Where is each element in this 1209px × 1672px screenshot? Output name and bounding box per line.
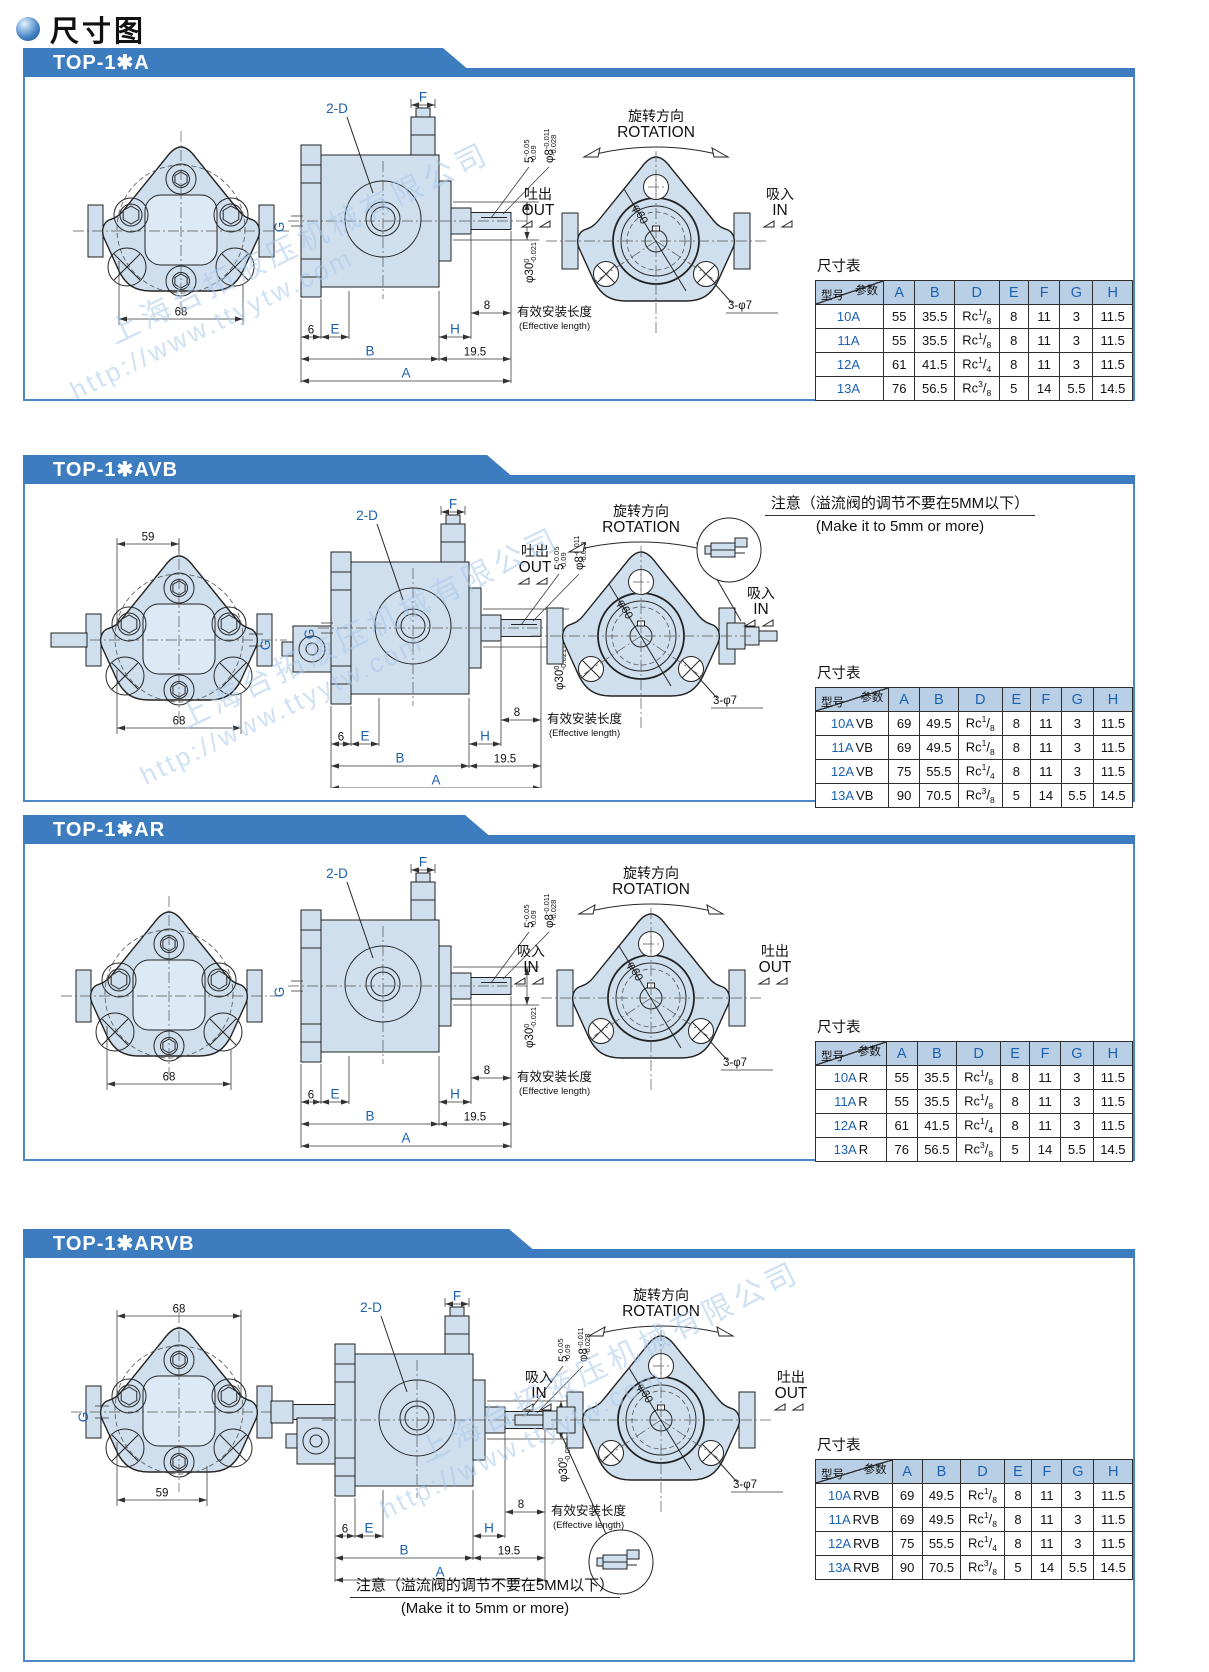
svg-text:有效安装长度: 有效安装长度: [547, 711, 623, 726]
column-header-D: D: [961, 1460, 1004, 1484]
svg-text:φ300-0.021: φ300-0.021: [522, 1007, 538, 1048]
svg-text:ROTATION: ROTATION: [612, 881, 690, 898]
table-row: 13ARVB9070.5Rc3/85145.514.5: [816, 1556, 1133, 1580]
section-top-1avb: TOP-1✱AVB 5968GF2-DG5-0.05-0.09φ8-0.011-…: [23, 455, 1135, 800]
model-label: 型号: [821, 287, 844, 303]
table-row: 10AVB6949.5Rc1/8811311.5: [816, 712, 1133, 736]
param-model-header: 参数型号: [816, 281, 884, 305]
table-row: 10A5535.5Rc1/8811311.5: [816, 305, 1133, 329]
model-cell: 12ARVB: [816, 1532, 893, 1556]
column-header-E: E: [1004, 1460, 1032, 1484]
value-cell: Rc1/8: [958, 736, 1002, 760]
value-cell: 14.5: [1093, 1138, 1132, 1162]
front-view: 5968G: [51, 532, 287, 735]
svg-text:G: G: [272, 222, 287, 233]
svg-text:5-0.05-0.09: 5-0.05-0.09: [552, 546, 568, 570]
model-cell: 10AVB: [816, 712, 889, 736]
svg-text:IN: IN: [753, 601, 769, 618]
value-cell: 5: [999, 377, 1028, 401]
value-cell: 8: [1001, 1114, 1030, 1138]
column-header-G: G: [1061, 688, 1093, 712]
value-cell: 61: [883, 353, 914, 377]
section-header-tab: TOP-1✱AR: [23, 815, 499, 844]
value-cell: 11.5: [1093, 712, 1132, 736]
value-cell: Rc1/8: [956, 1066, 1000, 1090]
svg-text:吐出: 吐出: [761, 943, 789, 959]
param-label: 参数: [860, 689, 883, 705]
dimension-table-title: 尺寸表: [817, 662, 1133, 683]
svg-text:ROTATION: ROTATION: [622, 1303, 700, 1320]
svg-text:19.5: 19.5: [494, 754, 516, 766]
value-cell: 11.5: [1094, 1532, 1133, 1556]
value-cell: 3: [1061, 712, 1093, 736]
param-label: 参数: [864, 1461, 887, 1477]
value-cell: 11.5: [1093, 736, 1132, 760]
value-cell: 11.5: [1093, 329, 1133, 353]
param-label: 参数: [858, 1043, 881, 1059]
svg-text:有效安装长度: 有效安装长度: [517, 304, 593, 319]
value-cell: 55.5: [919, 760, 958, 784]
value-cell: 3: [1060, 305, 1093, 329]
svg-text:G: G: [76, 1412, 91, 1423]
value-cell: 8: [1001, 1066, 1030, 1090]
column-header-B: B: [919, 688, 958, 712]
value-cell: 8: [1001, 1090, 1030, 1114]
model-cell: 12AVB: [816, 760, 889, 784]
value-cell: 3: [1062, 1508, 1094, 1532]
value-cell: 61: [886, 1114, 917, 1138]
param-model-header: 参数型号: [816, 1042, 887, 1066]
dimension-table: 参数型号ABDEFGH10AR5535.5Rc1/8811311.511AR55…: [815, 1041, 1133, 1162]
value-cell: 11.5: [1093, 305, 1133, 329]
table-row: 11AR5535.5Rc1/8811311.5: [816, 1090, 1133, 1114]
param-label: 参数: [855, 282, 878, 298]
svg-text:59: 59: [156, 1488, 169, 1500]
value-cell: 56.5: [915, 377, 955, 401]
svg-text:H: H: [484, 1521, 494, 1536]
value-cell: 5.5: [1061, 1138, 1094, 1162]
model-cell: 11AR: [816, 1090, 887, 1114]
table-row: 13A7656.5Rc3/85145.514.5: [816, 377, 1133, 401]
section-header-tab: TOP-1✱A: [23, 48, 477, 77]
column-header-E: E: [999, 281, 1028, 305]
svg-text:5-0.05-0.09: 5-0.05-0.09: [556, 1338, 572, 1362]
value-cell: Rc1/4: [956, 1114, 1000, 1138]
section-header: TOP-1✱AVB: [23, 455, 1135, 484]
column-header-B: B: [917, 1042, 956, 1066]
value-cell: 11: [1028, 305, 1059, 329]
section-title: TOP-1✱AVB: [23, 455, 521, 482]
value-cell: 69: [889, 712, 920, 736]
caution-note-en: (Make it to 5mm or more): [250, 1600, 720, 1617]
value-cell: 3: [1061, 760, 1093, 784]
table-row: 12A6141.5Rc1/4811311.5: [816, 353, 1133, 377]
front-view: 6859G19: [71, 1304, 372, 1507]
svg-text:IN: IN: [523, 959, 539, 976]
value-cell: 75: [892, 1532, 922, 1556]
value-cell: 35.5: [917, 1066, 956, 1090]
mounting-view: φ603-φ7旋转方向ROTATION吐出OUT吸入IN: [522, 108, 794, 336]
svg-text:19.5: 19.5: [464, 1112, 486, 1124]
param-model-header: 参数型号: [816, 1460, 893, 1484]
value-cell: 5.5: [1061, 784, 1093, 808]
value-cell: 76: [886, 1138, 917, 1162]
dimension-table-wrap: 尺寸表 参数型号ABDEFGH10A5535.5Rc1/8811311.511A…: [815, 255, 1133, 401]
value-cell: 11.5: [1093, 1114, 1132, 1138]
table-header-row: 参数型号ABDEFGH: [816, 1042, 1133, 1066]
svg-text:8: 8: [518, 1499, 524, 1511]
value-cell: 11.5: [1093, 1090, 1132, 1114]
model-cell: 11ARVB: [816, 1508, 893, 1532]
svg-text:E: E: [330, 322, 339, 337]
svg-text:5-0.05-0.09: 5-0.05-0.09: [522, 904, 538, 928]
svg-text:6: 6: [308, 325, 314, 337]
value-cell: 35.5: [915, 329, 955, 353]
column-header-A: A: [886, 1042, 917, 1066]
table-row: 13AR7656.5Rc3/85145.514.5: [816, 1138, 1133, 1162]
value-cell: 5: [1004, 1556, 1032, 1580]
svg-text:吐出: 吐出: [777, 1369, 805, 1385]
table-row: 12ARVB7555.5Rc1/4811311.5: [816, 1532, 1133, 1556]
model-cell: 13AR: [816, 1138, 887, 1162]
value-cell: 11: [1032, 1484, 1062, 1508]
value-cell: 11: [1030, 1114, 1061, 1138]
svg-text:G: G: [272, 987, 287, 998]
model-cell: 11A: [816, 329, 884, 353]
svg-text:吸入: 吸入: [766, 186, 794, 202]
param-model-header: 参数型号: [816, 688, 889, 712]
value-cell: 3: [1061, 1114, 1094, 1138]
mounting-view: φ603-φ7旋转方向ROTATION吐出OUT吸入IN: [515, 1287, 808, 1594]
bullet-icon: [16, 17, 40, 41]
value-cell: 8: [1004, 1508, 1032, 1532]
value-cell: 75: [889, 760, 920, 784]
value-cell: 5: [1001, 1138, 1030, 1162]
value-cell: 69: [892, 1484, 922, 1508]
svg-text:F: F: [419, 90, 427, 105]
value-cell: 14: [1030, 1138, 1061, 1162]
column-header-F: F: [1030, 1042, 1061, 1066]
value-cell: 69: [892, 1508, 922, 1532]
catalog-page: 尺寸图 TOP-1✱A 68F2-DG5-0.05-0.09φ8-0.011-0…: [0, 0, 1209, 1672]
value-cell: 14.5: [1093, 784, 1132, 808]
front-view: 68: [61, 896, 277, 1090]
svg-text:OUT: OUT: [775, 1385, 808, 1402]
section-header-tab: TOP-1✱AVB: [23, 455, 521, 484]
svg-text:19.5: 19.5: [464, 347, 486, 359]
svg-text:68: 68: [173, 1304, 186, 1316]
value-cell: 11.5: [1093, 760, 1132, 784]
svg-text:IN: IN: [531, 1385, 547, 1402]
column-header-A: A: [889, 688, 920, 712]
svg-text:G: G: [258, 640, 273, 651]
value-cell: 49.5: [922, 1484, 961, 1508]
value-cell: Rc1/8: [958, 712, 1002, 736]
value-cell: Rc1/4: [958, 760, 1002, 784]
svg-text:吸入: 吸入: [747, 585, 775, 601]
model-cell: 13ARVB: [816, 1556, 893, 1580]
svg-text:(Effective length): (Effective length): [519, 321, 590, 332]
value-cell: 8: [999, 305, 1028, 329]
value-cell: Rc3/8: [961, 1556, 1004, 1580]
svg-text:B: B: [365, 344, 374, 359]
value-cell: 76: [883, 377, 914, 401]
section-top-1ar: TOP-1✱AR 68F2-DG5-0.05-0.09φ8-0.011-0.02…: [23, 815, 1135, 1159]
dimension-table-title: 尺寸表: [817, 1434, 1133, 1455]
table-header-row: 参数型号ABDEFGH: [816, 688, 1133, 712]
value-cell: 41.5: [917, 1114, 956, 1138]
table-row: 10ARVB6949.5Rc1/8811311.5: [816, 1484, 1133, 1508]
value-cell: 11: [1028, 353, 1059, 377]
model-label: 型号: [821, 1048, 844, 1064]
value-cell: 11.5: [1094, 1508, 1133, 1532]
value-cell: 49.5: [922, 1508, 961, 1532]
value-cell: 70.5: [919, 784, 958, 808]
column-header-A: A: [892, 1460, 922, 1484]
value-cell: 11: [1032, 1532, 1062, 1556]
svg-text:旋转方向: 旋转方向: [633, 1287, 689, 1303]
caution-note-cn: 注意（溢流阀的调节不要在5MM以下）: [350, 1574, 620, 1598]
value-cell: 8: [999, 353, 1028, 377]
model-cell: 10A: [816, 305, 884, 329]
section-title: TOP-1✱ARVB: [23, 1229, 543, 1256]
column-header-H: H: [1093, 688, 1132, 712]
table-header-row: 参数型号ABDEFGH: [816, 281, 1133, 305]
value-cell: 3: [1061, 1090, 1094, 1114]
svg-text:(Effective length): (Effective length): [549, 728, 620, 739]
svg-text:H: H: [450, 322, 460, 337]
column-header-G: G: [1060, 281, 1093, 305]
value-cell: 14.5: [1094, 1556, 1133, 1580]
svg-text:φ8-0.011-0.028: φ8-0.011-0.028: [542, 893, 558, 928]
front-view: 68: [73, 131, 289, 325]
section-body: 68F2-DG5-0.05-0.09φ8-0.011-0.028φ300-0.0…: [23, 77, 1135, 401]
svg-text:8: 8: [484, 300, 490, 312]
svg-text:6: 6: [308, 1090, 314, 1102]
svg-text:吸入: 吸入: [525, 1369, 553, 1385]
section-top-1arvb: TOP-1✱ARVB 6859G19F2-D5-0.05-0.09φ8-0.01…: [23, 1229, 1135, 1660]
section-top-1a: TOP-1✱A 68F2-DG5-0.05-0.09φ8-0.011-0.028…: [23, 48, 1135, 399]
table-row: 12AR6141.5Rc1/4811311.5: [816, 1114, 1133, 1138]
value-cell: 8: [1002, 712, 1030, 736]
value-cell: 3: [1061, 736, 1093, 760]
section-header: TOP-1✱ARVB: [23, 1229, 1135, 1258]
value-cell: 90: [889, 784, 920, 808]
dimension-table-title: 尺寸表: [817, 1016, 1133, 1037]
value-cell: 11.5: [1093, 353, 1133, 377]
value-cell: 11: [1032, 1508, 1062, 1532]
value-cell: 11: [1031, 736, 1062, 760]
table-row: 11ARVB6949.5Rc1/8811311.5: [816, 1508, 1133, 1532]
value-cell: 35.5: [915, 305, 955, 329]
svg-text:3-φ7: 3-φ7: [728, 300, 752, 312]
svg-text:E: E: [360, 729, 369, 744]
svg-text:F: F: [419, 855, 427, 870]
svg-text:OUT: OUT: [522, 202, 555, 219]
value-cell: 11.5: [1094, 1484, 1133, 1508]
value-cell: 55: [883, 305, 914, 329]
section-body: 6859G19F2-D5-0.05-0.09φ8-0.011-0.028φ300…: [23, 1258, 1135, 1662]
value-cell: Rc3/8: [958, 784, 1002, 808]
value-cell: Rc1/4: [954, 353, 999, 377]
svg-text:2-D: 2-D: [356, 508, 378, 523]
value-cell: 8: [999, 329, 1028, 353]
value-cell: 55.5: [922, 1532, 961, 1556]
model-cell: 10ARVB: [816, 1484, 893, 1508]
svg-text:吐出: 吐出: [524, 186, 552, 202]
column-header-G: G: [1062, 1460, 1094, 1484]
value-cell: 11.5: [1093, 1066, 1132, 1090]
column-header-A: A: [883, 281, 914, 305]
value-cell: 3: [1060, 353, 1093, 377]
model-cell: 12A: [816, 353, 884, 377]
svg-text:旋转方向: 旋转方向: [623, 865, 679, 881]
column-header-F: F: [1031, 688, 1062, 712]
value-cell: 70.5: [922, 1556, 961, 1580]
svg-text:68: 68: [173, 716, 186, 728]
table-row: 11AVB6949.5Rc1/8811311.5: [816, 736, 1133, 760]
table-row: 13AVB9070.5Rc3/85145.514.5: [816, 784, 1133, 808]
caution-note: 注意（溢流阀的调节不要在5MM以下）(Make it to 5mm or mor…: [250, 1574, 720, 1617]
side-view: F2-DG5-0.05-0.09φ8-0.011-0.028φ300-0.021…: [272, 855, 593, 1149]
column-header-D: D: [956, 1042, 1000, 1066]
svg-text:φ300-0.021: φ300-0.021: [522, 242, 538, 283]
svg-text:φ8-0.011-0.028: φ8-0.011-0.028: [572, 535, 588, 570]
value-cell: 49.5: [919, 712, 958, 736]
value-cell: Rc3/8: [956, 1138, 1000, 1162]
dimension-table: 参数型号ABDEFGH10AVB6949.5Rc1/8811311.511AVB…: [815, 687, 1133, 808]
dimension-table: 参数型号ABDEFGH10A5535.5Rc1/8811311.511A5535…: [815, 280, 1133, 401]
svg-text:8: 8: [514, 707, 520, 719]
dimension-table-wrap: 尺寸表 参数型号ABDEFGH10AR5535.5Rc1/8811311.511…: [815, 1016, 1133, 1162]
column-header-B: B: [922, 1460, 961, 1484]
svg-text:68: 68: [163, 1072, 176, 1084]
model-label: 型号: [821, 694, 844, 710]
svg-text:B: B: [365, 1109, 374, 1124]
value-cell: 8: [1002, 760, 1030, 784]
page-title-text: 尺寸图: [50, 8, 146, 50]
value-cell: 11: [1028, 329, 1059, 353]
value-cell: 14: [1028, 377, 1059, 401]
section-body: 68F2-DG5-0.05-0.09φ8-0.011-0.028φ300-0.0…: [23, 844, 1135, 1161]
value-cell: 90: [892, 1556, 922, 1580]
svg-text:H: H: [480, 729, 490, 744]
model-cell: 10AR: [816, 1066, 887, 1090]
caution-note-cn: 注意（溢流阀的调节不要在5MM以下）: [765, 492, 1035, 516]
column-header-G: G: [1061, 1042, 1094, 1066]
model-cell: 12AR: [816, 1114, 887, 1138]
dimension-table-title: 尺寸表: [817, 255, 1133, 276]
section-header: TOP-1✱AR: [23, 815, 1135, 844]
svg-text:F: F: [449, 497, 457, 512]
svg-text:2-D: 2-D: [326, 866, 348, 881]
svg-text:2-D: 2-D: [326, 101, 348, 116]
value-cell: Rc1/8: [961, 1508, 1004, 1532]
svg-text:3-φ7: 3-φ7: [713, 695, 737, 707]
value-cell: Rc1/8: [954, 329, 999, 353]
section-title: TOP-1✱A: [23, 48, 477, 75]
value-cell: Rc1/8: [956, 1090, 1000, 1114]
value-cell: 55: [886, 1066, 917, 1090]
column-header-B: B: [915, 281, 955, 305]
value-cell: 3: [1061, 1066, 1094, 1090]
value-cell: 5: [1002, 784, 1030, 808]
svg-text:OUT: OUT: [519, 559, 552, 576]
value-cell: 55: [883, 329, 914, 353]
svg-text:IN: IN: [772, 202, 788, 219]
value-cell: 35.5: [917, 1090, 956, 1114]
column-header-H: H: [1093, 281, 1133, 305]
table-row: 12AVB7555.5Rc1/4811311.5: [816, 760, 1133, 784]
value-cell: 3: [1060, 329, 1093, 353]
table-row: 10AR5535.5Rc1/8811311.5: [816, 1066, 1133, 1090]
svg-text:3-φ7: 3-φ7: [723, 1057, 747, 1069]
svg-text:(Effective length): (Effective length): [519, 1086, 590, 1097]
svg-text:6: 6: [342, 1524, 348, 1536]
svg-text:ROTATION: ROTATION: [617, 124, 695, 141]
model-cell: 11AVB: [816, 736, 889, 760]
value-cell: 3: [1062, 1484, 1094, 1508]
svg-text:旋转方向: 旋转方向: [628, 108, 684, 124]
section-header: TOP-1✱A: [23, 48, 1135, 77]
value-cell: 41.5: [915, 353, 955, 377]
svg-text:68: 68: [175, 307, 188, 319]
value-cell: 56.5: [917, 1138, 956, 1162]
value-cell: Rc1/4: [961, 1532, 1004, 1556]
page-title: 尺寸图: [16, 8, 146, 50]
svg-text:(Effective length): (Effective length): [553, 1520, 624, 1531]
table-row: 11A5535.5Rc1/8811311.5: [816, 329, 1133, 353]
value-cell: Rc1/8: [954, 305, 999, 329]
column-header-E: E: [1002, 688, 1030, 712]
column-header-F: F: [1032, 1460, 1062, 1484]
value-cell: 55: [886, 1090, 917, 1114]
table-header-row: 参数型号ABDEFGH: [816, 1460, 1133, 1484]
value-cell: Rc1/8: [961, 1484, 1004, 1508]
column-header-D: D: [958, 688, 1002, 712]
mounting-view: φ603-φ7旋转方向ROTATION吐出OUT吸入IN: [519, 503, 777, 731]
svg-text:吐出: 吐出: [521, 543, 549, 559]
value-cell: 8: [1004, 1532, 1032, 1556]
svg-text:E: E: [364, 1521, 373, 1536]
column-header-H: H: [1093, 1042, 1132, 1066]
svg-text:有效安装长度: 有效安装长度: [551, 1503, 627, 1518]
dimension-table-wrap: 尺寸表 参数型号ABDEFGH10ARVB6949.5Rc1/8811311.5…: [815, 1434, 1133, 1580]
section-title: TOP-1✱AR: [23, 815, 499, 842]
mounting-view: φ603-φ7旋转方向ROTATION吐出OUT吸入IN: [515, 865, 792, 1093]
svg-text:5-0.05-0.09: 5-0.05-0.09: [522, 139, 538, 163]
value-cell: 8: [1002, 736, 1030, 760]
dimension-table-wrap: 尺寸表 参数型号ABDEFGH10AVB6949.5Rc1/8811311.51…: [815, 662, 1133, 808]
value-cell: 14: [1031, 784, 1062, 808]
side-view: F2-DG5-0.05-0.09φ8-0.011-0.028φ300-0.021…: [272, 90, 593, 384]
value-cell: 5.5: [1062, 1556, 1094, 1580]
svg-text:2-D: 2-D: [360, 1300, 382, 1315]
column-header-D: D: [954, 281, 999, 305]
svg-text:F: F: [453, 1289, 461, 1304]
svg-text:G: G: [302, 629, 317, 640]
dimension-table: 参数型号ABDEFGH10ARVB6949.5Rc1/8811311.511AR…: [815, 1459, 1133, 1580]
svg-text:A: A: [401, 366, 410, 381]
model-cell: 13A: [816, 377, 884, 401]
svg-text:H: H: [450, 1087, 460, 1102]
model-label: 型号: [821, 1466, 844, 1482]
svg-text:59: 59: [142, 532, 155, 544]
svg-text:吸入: 吸入: [517, 943, 545, 959]
svg-text:3-φ7: 3-φ7: [733, 1479, 757, 1491]
svg-text:A: A: [431, 773, 440, 788]
value-cell: 5.5: [1060, 377, 1093, 401]
